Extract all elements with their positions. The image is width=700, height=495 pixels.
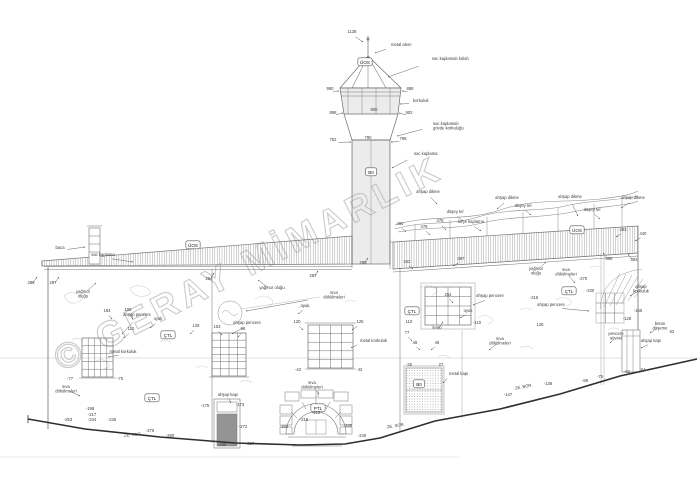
- annotation-label: -26: [406, 362, 413, 367]
- annotation-label: -253: [64, 417, 73, 422]
- annotation-label: -88: [582, 378, 589, 383]
- annotation-label: oyuk: [301, 303, 311, 308]
- annotation-label: 62: [670, 329, 675, 334]
- annotation: -215: [300, 417, 309, 422]
- annotation: -272: [239, 424, 248, 429]
- annotation-label: -276: [146, 428, 155, 433]
- annotation: -26: [406, 362, 413, 367]
- annotation-label: -138: [544, 381, 553, 386]
- annotation-label: 900: [371, 107, 379, 112]
- annotation-label: 184: [104, 308, 112, 313]
- annotation-label: -62: [624, 369, 631, 374]
- ref-tag: ÜOS: [186, 241, 200, 249]
- annotation-label: yağmur oluğu: [259, 285, 285, 290]
- annotation: -88: [582, 378, 589, 383]
- annotation-label: oyuk: [154, 316, 164, 321]
- annotation-label: 790: [365, 135, 373, 140]
- annotation-label: -232: [280, 424, 289, 429]
- annotation-label: 64: [641, 367, 646, 372]
- window-grid-lines: [308, 325, 353, 368]
- annotation: 254: [445, 292, 454, 303]
- annotation: -280: [166, 433, 175, 438]
- annotation-label: -240: [218, 442, 227, 447]
- annotation: sıvadökülmeleri: [555, 267, 576, 283]
- annotation: metal kapı: [443, 371, 468, 383]
- annotation: 64: [641, 367, 646, 372]
- annotation: ahşap pencere: [232, 320, 262, 334]
- annotation-label: -77: [67, 376, 74, 381]
- annotation: 128: [537, 322, 545, 327]
- annotation: -155: [634, 308, 643, 313]
- annotation-label: betondöşeme: [653, 321, 669, 330]
- annotation: 110: [406, 319, 413, 324]
- annotation-label: -272: [239, 424, 248, 429]
- ref-tag: ÇTL: [161, 331, 175, 339]
- annotation-label: yağmuroluğu: [529, 266, 544, 275]
- annotation: 98: [238, 326, 246, 337]
- annotation: -212: [312, 410, 321, 415]
- annotation: 902: [399, 110, 413, 115]
- annotation: 798: [391, 136, 407, 142]
- annotation: sac kaplamalı külah: [388, 56, 469, 77]
- annotation: 888: [402, 86, 414, 91]
- annotation-label: 98: [241, 326, 246, 331]
- ref-tag: ÇTL: [562, 287, 576, 295]
- annotation: -75: [597, 374, 604, 379]
- annotation-label: ahşap dikme: [416, 189, 440, 194]
- annotation: 752: [330, 137, 352, 142]
- annotation-label: sac kaplamalıgövde korkuluğu: [433, 121, 464, 130]
- annotation-label: yağmuroluğu: [76, 289, 91, 298]
- annotation-label: 120: [294, 319, 302, 324]
- annotation: -227: [246, 441, 255, 446]
- annotation: betondöşeme: [650, 321, 668, 333]
- annotation: 42: [358, 367, 363, 372]
- annotation-label: -212: [312, 410, 321, 415]
- ref-tag: B0: [365, 168, 376, 176]
- annotation-label: 128: [537, 322, 545, 327]
- annotation-label: 480: [397, 221, 405, 226]
- annotation-label: -215: [300, 417, 309, 422]
- annotation-label: 254: [445, 292, 453, 297]
- annotation-label: 186: [125, 307, 133, 312]
- annotation-label: -155: [634, 308, 643, 313]
- annotation: 1138: [347, 29, 363, 42]
- annotation-label: -198: [86, 406, 95, 411]
- annotation-label: 888: [407, 86, 415, 91]
- annotation-label: 46: [435, 340, 440, 345]
- annotation: -276: [146, 428, 155, 433]
- ref-tag: B0: [413, 380, 424, 388]
- annotation: ahşapkorkuluk: [630, 284, 650, 296]
- annotation-label: 902: [406, 110, 414, 115]
- annotation: -175: [201, 403, 210, 408]
- ref-tag: ÇTL: [145, 394, 159, 402]
- window-grid-lines: [212, 333, 246, 376]
- annotation-label: ahşap pencere: [537, 302, 565, 307]
- annotation: -235: [344, 423, 353, 428]
- annotation: sıvadökülmeleri: [246, 290, 345, 311]
- annotation-label: -147: [504, 392, 513, 397]
- annotation-label: lento: [432, 325, 442, 330]
- annotation: -270: [579, 276, 588, 281]
- annotation: metal alem: [375, 42, 412, 53]
- annotation: yağmuroluğu: [76, 283, 96, 298]
- annotation-label: -230: [586, 288, 595, 293]
- ref-tag-label: ÇTL: [565, 289, 574, 294]
- annotation: ahşap pencere: [537, 302, 589, 311]
- elevation-drawing: © GERAY MİMARLIK: [0, 0, 700, 495]
- annotation-label: sıvadökülmeleri: [489, 336, 510, 345]
- ref-tag-label: ÜOS: [572, 227, 582, 233]
- annotation-label: metal korkuluk: [110, 349, 138, 354]
- downspout: [601, 253, 604, 385]
- annotation-label: -227: [246, 441, 255, 446]
- annotation: 898: [330, 110, 344, 115]
- annotation-label: 392: [631, 257, 639, 262]
- window-center-left: [209, 333, 249, 377]
- annotation: 287: [50, 277, 60, 285]
- annotation: metal korkuluk: [351, 338, 388, 348]
- annotation: 286: [28, 277, 38, 285]
- ref-tag-label: ÇTL: [408, 309, 417, 314]
- ref-tag-label: ÇTL: [148, 396, 157, 401]
- ref-tag: ÜOS: [358, 58, 372, 66]
- annotation-label: 284: [206, 276, 214, 281]
- annotation-label: -235: [344, 423, 353, 428]
- annotation-label: metal alem: [391, 42, 412, 47]
- annotation-label: -173: [236, 402, 245, 407]
- annotation-label: -236: [108, 417, 117, 422]
- annotation: korkuluk: [400, 98, 429, 104]
- annotation-label: ahşap pencere: [233, 320, 261, 325]
- annotation-label: -234: [88, 417, 97, 422]
- annotation-label: -75: [597, 374, 604, 379]
- window-center: [305, 323, 356, 369]
- metal-door: [404, 366, 444, 414]
- annotation-label: sıvadökülmeleri: [55, 384, 76, 393]
- annotation-label: -128: [623, 316, 632, 321]
- annotation: 287: [310, 271, 319, 278]
- annotation-label: oyuk: [464, 308, 474, 313]
- annotation-label: 798: [400, 136, 408, 141]
- window-right-center: [421, 283, 475, 329]
- annotation-label: penceresövesi: [608, 331, 624, 340]
- facade-walls: [42, 253, 638, 443]
- annotation: 980: [327, 86, 340, 91]
- annotation-label: sıvadökülmeleri: [301, 380, 322, 389]
- annotation-label: 128: [193, 323, 201, 328]
- annotation: -234: [88, 417, 97, 422]
- annotation-label: keçe kaplama: [458, 219, 485, 224]
- annotation-label: 898: [330, 110, 338, 115]
- annotation-label: sac kaplama: [91, 252, 115, 257]
- annotation: -198: [86, 406, 95, 411]
- annotation-label: 48: [413, 340, 418, 345]
- annotation-label: 125: [357, 319, 365, 324]
- annotation-label: ZE. SOR.: [124, 431, 142, 437]
- annotation-label: sac kaplamalı külah: [432, 56, 469, 61]
- annotation-label: -270: [579, 276, 588, 281]
- annotation-label: düşey tel: [584, 207, 601, 212]
- annotation: -230: [586, 288, 595, 293]
- annotation: 48: [413, 340, 420, 350]
- annotation-label: ahşap kapı: [218, 392, 239, 397]
- annotation-label: ahşap pencere: [476, 293, 504, 298]
- annotation: ahşap kapı: [641, 338, 662, 348]
- annotation: -138: [544, 381, 553, 386]
- annotation-label: 27: [439, 362, 444, 367]
- annotation: -236: [108, 417, 117, 422]
- ref-tag-label: ÜOS: [188, 242, 198, 248]
- annotation: 900: [371, 107, 379, 112]
- annotation: -62: [624, 369, 631, 374]
- annotation: -77: [67, 376, 74, 381]
- annotation: metal korkuluk: [108, 349, 137, 357]
- annotation-label: sac kaplama: [414, 151, 438, 156]
- annotation: ZE. SOR.: [387, 422, 405, 430]
- annotation-label: -215: [530, 295, 539, 300]
- annotation: -42: [295, 367, 302, 372]
- annotation-label: 110: [406, 319, 413, 324]
- annotation-label: 153: [214, 324, 222, 329]
- annotation-label: 110: [128, 326, 135, 331]
- annotation: sıvadökülmeleri: [301, 380, 322, 394]
- annotation: 128: [190, 323, 200, 334]
- annotation: 62: [670, 329, 675, 334]
- annotation-label: metal kapı: [449, 371, 468, 376]
- annotation: yağmur oluğu: [258, 280, 285, 290]
- chimney: [87, 226, 102, 264]
- ref-tag-label: B0: [368, 170, 374, 175]
- annotation-label: korkuluk: [413, 98, 429, 103]
- annotation: 77: [405, 330, 412, 341]
- annotation-label: 42: [358, 367, 363, 372]
- ref-tag: ÜOS: [570, 226, 584, 234]
- annotation: -110: [473, 320, 482, 325]
- annotation-label: -75: [117, 376, 124, 381]
- annotation-label: baca: [55, 245, 65, 250]
- annotation: lento: [432, 322, 443, 330]
- annotation: 392: [628, 254, 638, 262]
- annotation-label: 77: [405, 330, 410, 335]
- annotation-label: 440: [640, 231, 648, 236]
- annotation-label: 483: [620, 227, 628, 232]
- right-roof: [393, 226, 638, 272]
- annotation: 790: [365, 135, 373, 140]
- annotation-label: 980: [327, 86, 335, 91]
- annotation: -232: [280, 424, 289, 429]
- annotation: -253: [64, 417, 73, 422]
- annotation-label: sıvadökülmeleri: [555, 267, 576, 276]
- annotation-label: ZE. SOR.: [387, 422, 405, 430]
- annotation: -75: [117, 376, 124, 381]
- annotation: 120: [294, 319, 304, 330]
- annotation-label: -42: [295, 367, 302, 372]
- annotation-label: ahşap kapı: [641, 338, 662, 343]
- annotation: -147: [504, 392, 513, 397]
- annotation: -215: [530, 295, 539, 300]
- annotation-label: -175: [201, 403, 210, 408]
- ref-tag-label: ÜOS: [360, 59, 370, 65]
- annotation-label: 298: [360, 260, 368, 265]
- annotation: 125: [352, 319, 364, 330]
- annotation-label: ZE. BÖR.: [514, 382, 533, 390]
- ref-tag: ÇTL: [405, 307, 419, 315]
- annotation: 479: [421, 224, 431, 235]
- annotation: -128: [623, 316, 632, 321]
- annotation-label: -280: [166, 433, 175, 438]
- annotation: ZE. BÖR.: [514, 382, 533, 390]
- annotation-label: 752: [330, 137, 338, 142]
- ref-tag-label: ÇTL: [164, 333, 173, 338]
- annotation-label: 1138: [347, 29, 357, 34]
- annotation: ahşap dikme: [621, 195, 646, 208]
- annotation-label: ahşap dikme: [495, 195, 519, 200]
- annotation-label: -110: [473, 320, 482, 325]
- annotation-label: 286: [28, 280, 36, 285]
- annotation-label: 398: [606, 256, 614, 261]
- annotation-label: -240: [358, 433, 367, 438]
- annotation: yağmuroluğu: [529, 262, 546, 275]
- far-right-door: [622, 330, 640, 372]
- annotation-label: sıvadökülmeleri: [323, 290, 344, 299]
- annotation: düşey tel: [584, 207, 601, 219]
- annotation-label: düşey tel: [515, 203, 532, 208]
- annotation: oyuk: [298, 303, 310, 314]
- annotation-label: 479: [421, 224, 429, 229]
- annotation: sac kaplamalıgövde korkuluğu: [397, 121, 464, 136]
- annotation-label: metal korkuluk: [360, 338, 388, 343]
- ref-tag-label: B0: [416, 382, 422, 387]
- annotation: -173: [236, 402, 245, 407]
- annotation-label: 387: [458, 256, 466, 261]
- annotation: sıvadökülmeleri: [55, 384, 80, 396]
- annotation-label: 342: [404, 259, 412, 264]
- annotation-label: 475: [437, 218, 445, 223]
- annotation-label: düşey tel: [447, 209, 464, 214]
- annotation: 46: [431, 340, 440, 350]
- annotation-label: 287: [50, 280, 58, 285]
- annotation-label: 287: [310, 273, 318, 278]
- annotation: 153: [214, 324, 223, 335]
- annotation: -240: [358, 433, 367, 438]
- annotation: sıvadökülmeleri: [489, 336, 511, 350]
- datum-lines: [0, 358, 700, 457]
- annotation-label: ahşap dikme: [621, 195, 645, 200]
- elevation-sheet: © GERAY MİMARLIK: [0, 0, 700, 495]
- annotation: baca: [55, 245, 85, 250]
- annotation: ZE. SOR.: [124, 431, 142, 437]
- annotation-label: ahşap pencere: [123, 312, 151, 317]
- annotation: ahşap pencere: [473, 293, 505, 305]
- annotation: 27: [439, 362, 444, 367]
- arched-stone-doorway: [280, 390, 352, 446]
- annotation: -240: [218, 442, 227, 447]
- annotation-label: ahşapkorkuluk: [633, 284, 649, 293]
- annotation-label: ahşap dikme: [558, 194, 582, 199]
